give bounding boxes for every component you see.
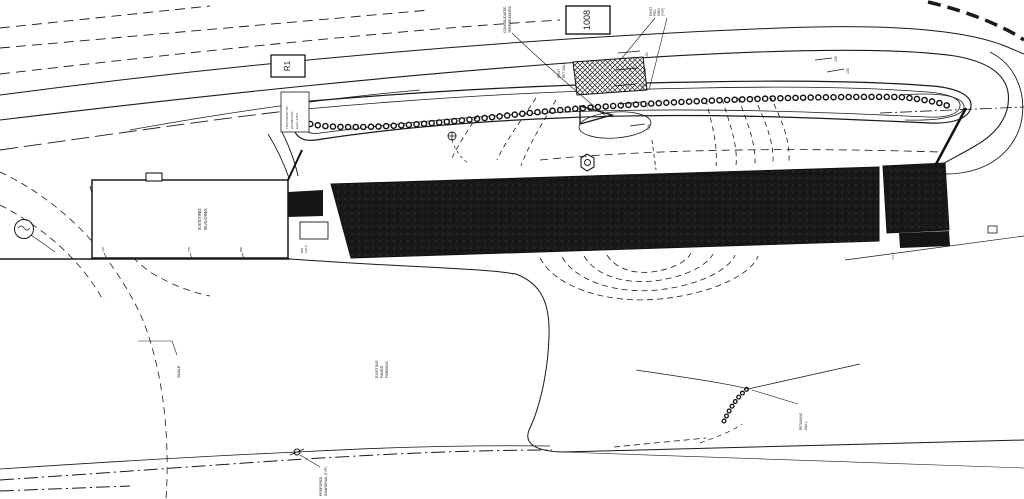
svg-text:TREE REMOVED: TREE REMOVED xyxy=(508,5,512,33)
contour-132: 132 xyxy=(641,84,645,90)
existing-building-outline xyxy=(92,180,288,258)
buildings xyxy=(92,108,1024,260)
wall-line-a xyxy=(636,370,748,389)
contour-r133: 133 xyxy=(846,68,850,74)
contour-133: 133 xyxy=(645,102,649,108)
site-plan-canvas: R1 1008 TW IN ROOT OF 2% MIN PVC ELEV 12… xyxy=(0,0,1024,499)
building-protrusion xyxy=(899,231,950,248)
existing-building-label: EXISTING xyxy=(197,208,202,230)
divider-wall-outline xyxy=(300,222,328,239)
boundary-lines xyxy=(0,253,1024,491)
monument-hexagon-center xyxy=(585,160,591,166)
existing-building-notch xyxy=(146,173,162,181)
road-centerline xyxy=(880,107,1024,113)
guardrail-leader xyxy=(300,455,320,467)
dashed-edge xyxy=(614,438,706,447)
retaining-wall-label: RETAINING xyxy=(799,412,803,430)
wall-dashed-toe xyxy=(700,424,742,443)
svg-text:WALL: WALL xyxy=(804,421,808,430)
street-dashed-3 xyxy=(0,6,210,28)
building-annex xyxy=(883,163,949,233)
swale-label: SWALE xyxy=(177,365,181,378)
tree-symbol-icon xyxy=(15,220,34,239)
swale-leader xyxy=(138,341,177,355)
utility-pole-tail xyxy=(452,140,468,163)
svg-text:RET WALL: RET WALL xyxy=(562,62,566,78)
svg-text:160.0: 160.0 xyxy=(304,245,308,253)
monument-hexagon-icon xyxy=(581,154,594,171)
wall-tag-1: TW xyxy=(101,247,105,252)
tree-symbol-squiggle xyxy=(18,226,30,230)
contour-124: 124 xyxy=(647,124,651,130)
loop-road xyxy=(294,81,1024,140)
svg-text:BUILDING: BUILDING xyxy=(203,208,208,230)
ramp-edge-left-2 xyxy=(268,132,298,178)
svg-text:PAVED: PAVED xyxy=(380,365,384,378)
contour-r132: 132 xyxy=(834,56,838,62)
ret-wall-top-note: EXIST xyxy=(557,69,561,78)
wall-line-b xyxy=(748,364,860,389)
site-boundary xyxy=(290,259,1024,452)
contour-130: 130 xyxy=(645,52,649,58)
site-boundary-branch xyxy=(562,452,1024,468)
connector-structure xyxy=(288,190,323,217)
centerline-bottom xyxy=(0,450,552,480)
route-box-label: R1 xyxy=(283,60,292,71)
consolidated-note: CONSOLIDATED xyxy=(503,6,507,33)
svg-text:PARKING: PARKING xyxy=(385,361,389,378)
parking-label: EXISTING xyxy=(375,360,379,378)
street-longdash xyxy=(0,110,296,150)
contour-131: 131 xyxy=(643,68,647,74)
street-solid-upper xyxy=(0,27,1024,95)
site-plan-drawing: R1 1008 TW IN ROOT OF 2% MIN PVC ELEV 12… xyxy=(0,0,1024,499)
tree-leader xyxy=(31,235,55,252)
crosswalk xyxy=(573,57,647,95)
building-number-label: 1008 xyxy=(582,10,592,30)
property-line-thick-dashed xyxy=(928,2,1024,40)
proposed-guardrail-label: PROPOSED xyxy=(319,476,323,496)
wall-tag-3: BW xyxy=(239,247,243,252)
wall-leader xyxy=(752,390,798,404)
svg-text:2% MIN PVC: 2% MIN PVC xyxy=(290,110,294,129)
wall-tag-2: TW xyxy=(187,247,191,252)
callout-ellipse xyxy=(578,110,652,141)
street-dashed-1 xyxy=(0,10,430,48)
centerline-corner xyxy=(0,486,130,491)
svg-text:(TYP): (TYP) xyxy=(661,8,665,16)
guardrail-line xyxy=(0,446,550,469)
proposed-building xyxy=(331,167,879,258)
small-structure-right xyxy=(988,226,997,233)
svg-text:TW IN ROOT OF: TW IN ROOT OF xyxy=(285,106,289,129)
retaining-wall-symbol xyxy=(636,364,860,443)
svg-text:ELEV 125.0: ELEV 125.0 xyxy=(295,113,299,129)
crosswalk-hatch xyxy=(573,57,647,95)
annex-elev-label: 172.1 xyxy=(891,252,895,260)
svg-text:GUARDRAIL (TYP): GUARDRAIL (TYP) xyxy=(324,467,328,496)
